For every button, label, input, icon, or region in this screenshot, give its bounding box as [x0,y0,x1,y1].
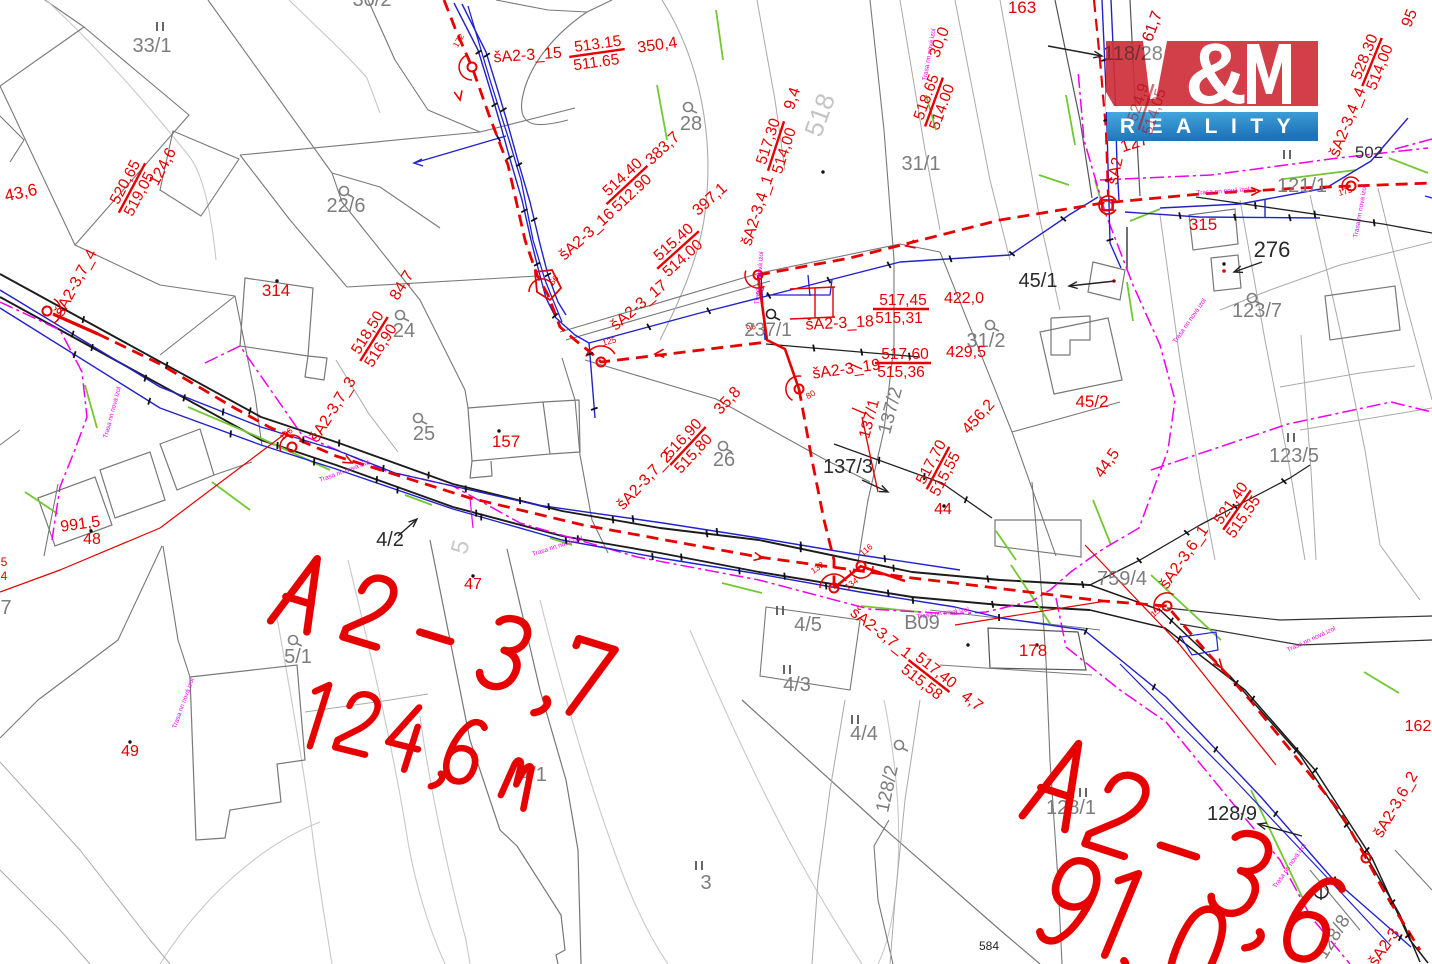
svg-text:237/1: 237/1 [744,320,792,341]
svg-text:33/1: 33/1 [133,35,172,57]
svg-text:4/5: 4/5 [794,614,822,636]
svg-text:314: 314 [262,281,290,300]
svg-text:5/1: 5/1 [284,646,312,668]
svg-text:422,0: 422,0 [944,290,984,307]
svg-text:137/3: 137/3 [823,456,873,478]
svg-text:584: 584 [979,939,999,953]
svg-text:515,31: 515,31 [875,310,922,327]
svg-text:515,36: 515,36 [877,364,924,381]
svg-text:121/1: 121/1 [1277,175,1327,197]
svg-text:45/1: 45/1 [1019,270,1058,292]
svg-text:123/7: 123/7 [1232,300,1282,322]
svg-text:3: 3 [700,872,711,894]
svg-text:128/9: 128/9 [1207,803,1257,825]
svg-text:517,60: 517,60 [881,346,929,363]
svg-text:25: 25 [413,423,435,445]
svg-text:7: 7 [0,597,11,619]
svg-text:5: 5 [1,555,8,569]
svg-text:49: 49 [121,743,139,760]
svg-text:178: 178 [1019,641,1047,660]
svg-text:30/2: 30/2 [353,0,392,11]
svg-text:48: 48 [83,531,101,548]
svg-text:22/6: 22/6 [327,195,366,217]
svg-text:429,5: 429,5 [946,344,986,361]
svg-text:45/2: 45/2 [1075,392,1108,411]
svg-text:118/28: 118/28 [1103,43,1163,65]
svg-text:28: 28 [680,113,702,135]
svg-text:517,45: 517,45 [879,292,926,309]
svg-text:47: 47 [464,576,482,593]
svg-text:157: 157 [492,432,520,451]
svg-text:4/2: 4/2 [376,529,404,551]
svg-text:44: 44 [934,501,952,518]
svg-text:759/4: 759/4 [1097,568,1147,590]
svg-text:4/3: 4/3 [783,674,811,696]
svg-text:502: 502 [1355,143,1383,162]
svg-text:31/1: 31/1 [902,153,941,175]
svg-text:276: 276 [1254,237,1291,262]
svg-text:šA2-3_18: šA2-3_18 [805,313,874,334]
svg-text:123/5: 123/5 [1269,445,1319,467]
svg-text:162: 162 [1405,718,1432,735]
svg-text:4: 4 [1,569,8,583]
svg-text:163: 163 [1008,0,1036,17]
svg-text:4/4: 4/4 [850,723,878,745]
svg-text:315: 315 [1189,215,1217,234]
